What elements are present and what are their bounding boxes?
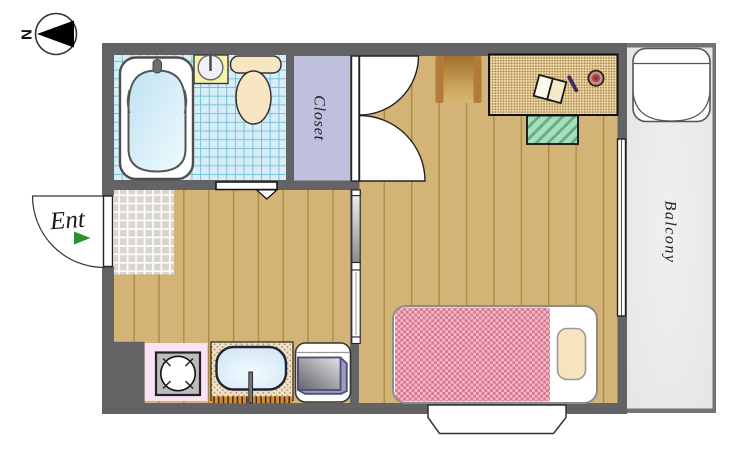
svg-text:Closet: Closet bbox=[311, 95, 328, 141]
svg-text:Balcony: Balcony bbox=[662, 201, 679, 264]
svg-text:Ent: Ent bbox=[48, 206, 87, 235]
svg-text:N: N bbox=[18, 29, 35, 40]
